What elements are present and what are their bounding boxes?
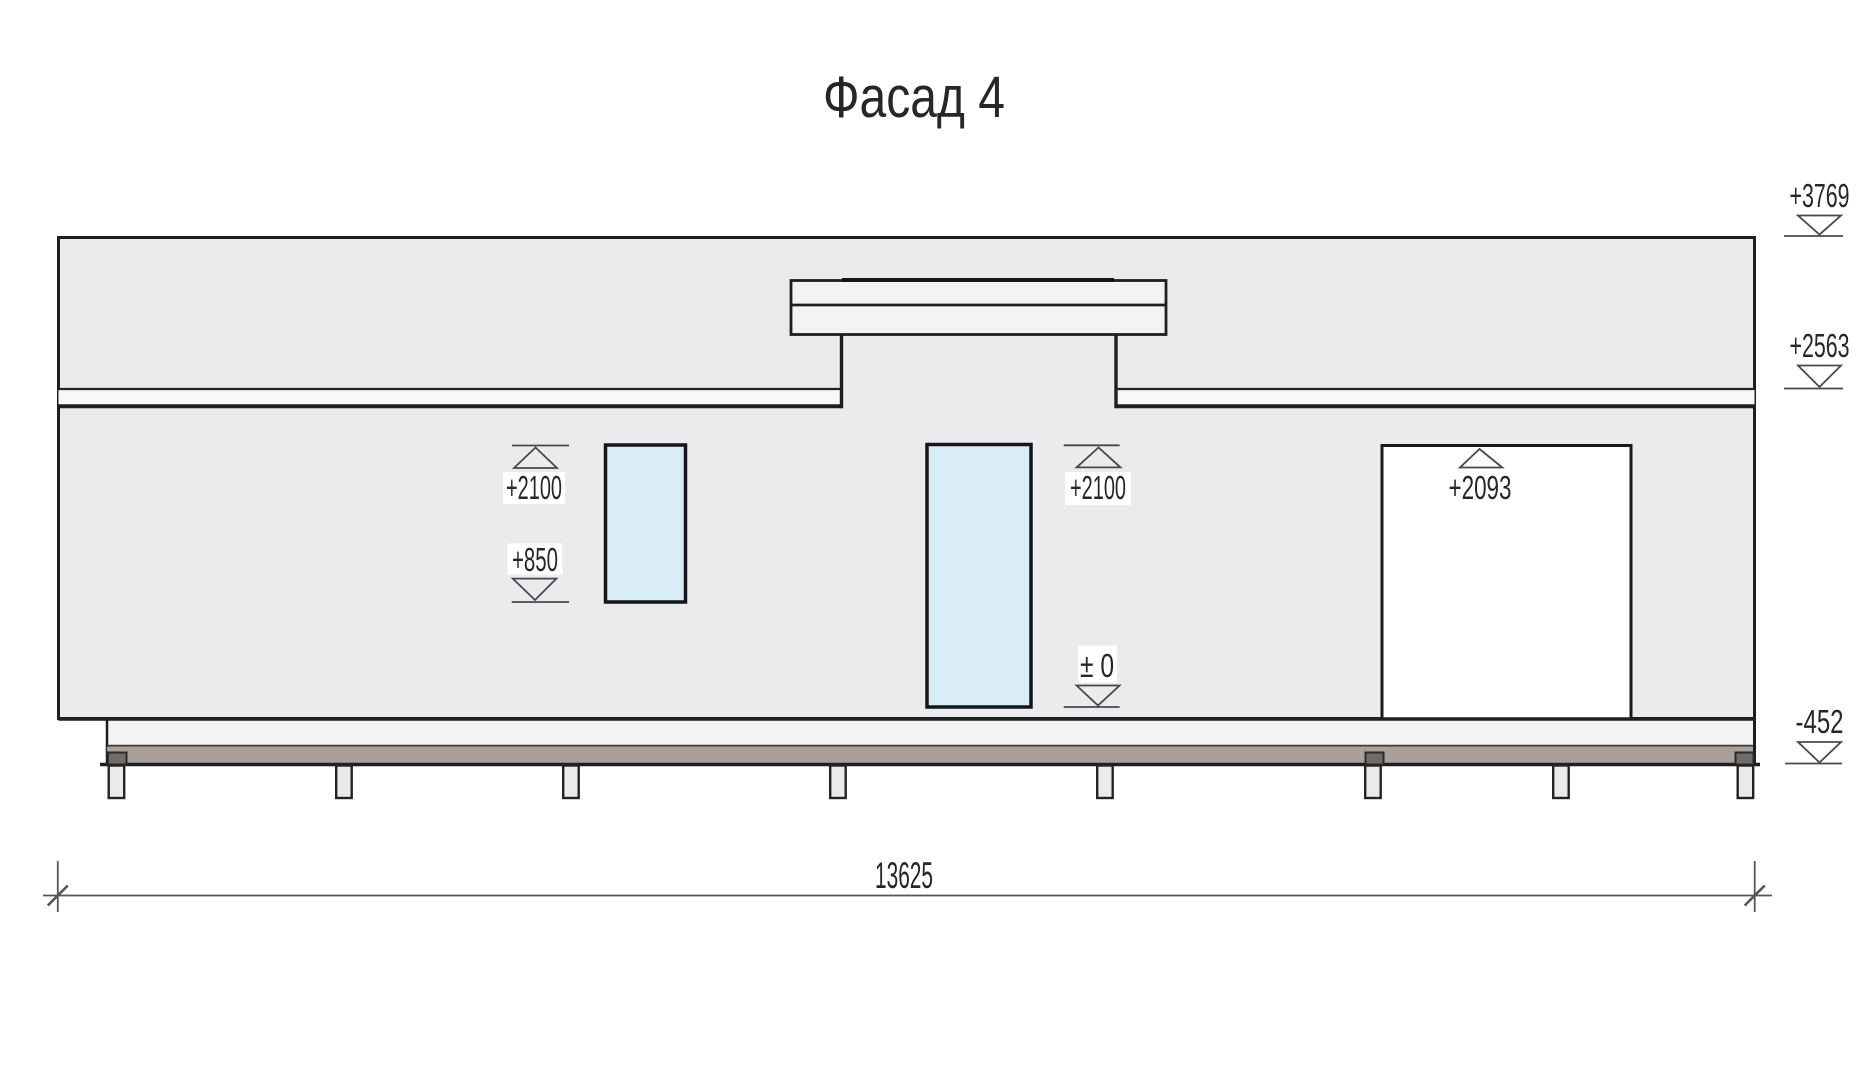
svg-text:+2100: +2100 [1070,469,1126,506]
svg-text:+3769: +3769 [1790,177,1850,214]
svg-text:± 0: ± 0 [1080,647,1114,684]
svg-text:+2563: +2563 [1790,327,1850,364]
svg-text:+2100: +2100 [506,469,562,506]
svg-text:-452: -452 [1796,703,1844,740]
svg-text:13625: 13625 [875,855,933,896]
svg-text:+850: +850 [512,541,558,578]
svg-text:Фасад 4: Фасад 4 [823,65,1005,130]
svg-text:+2093: +2093 [1449,469,1512,506]
